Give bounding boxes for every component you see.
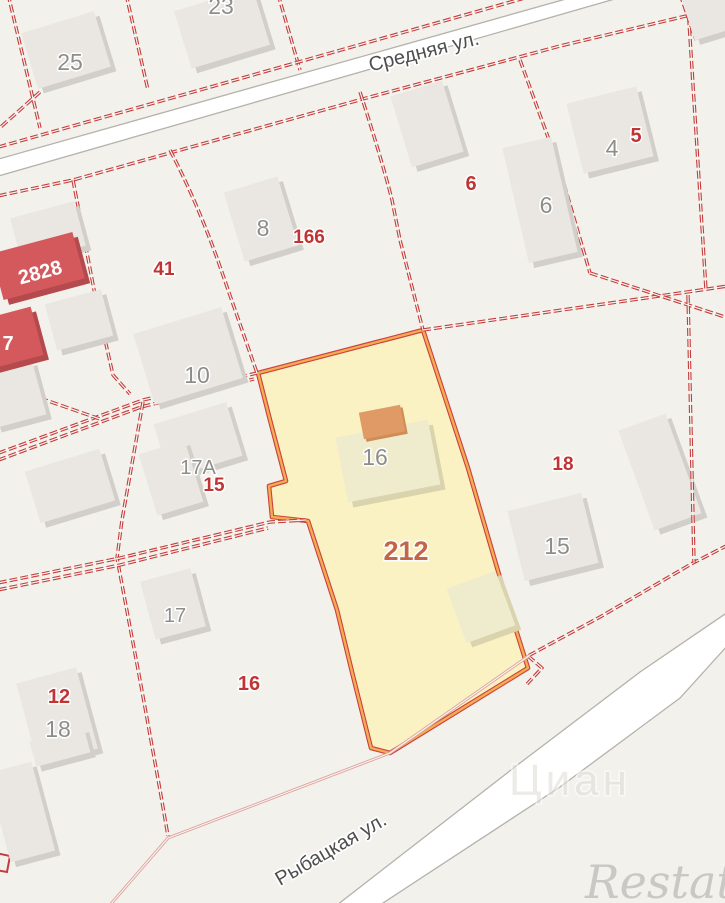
cadastral-map[interactable]: 25 23 8 166 41 2828 7 10 17А 15 17 16 12… <box>0 0 725 903</box>
building-label-17: 17 <box>164 605 186 627</box>
parcel-label-18: 18 <box>552 454 573 475</box>
building-label-4: 4 <box>606 135 619 161</box>
building-label-23: 23 <box>208 0 234 19</box>
selected-parcel-label: 212 <box>383 536 428 566</box>
building-label-7: 7 <box>2 333 13 355</box>
parcel-label-12: 12 <box>48 686 70 708</box>
parcel-label-16: 16 <box>238 673 260 695</box>
building-label-18: 18 <box>45 716 71 742</box>
parcel-label-6: 6 <box>465 173 476 195</box>
building-label-25: 25 <box>57 49 83 75</box>
parcel-label-166: 166 <box>293 227 325 248</box>
building-label-6: 6 <box>540 192 553 218</box>
watermark-restate: Restate <box>584 855 725 903</box>
watermark-cian: Циан <box>509 756 631 805</box>
building-label-15: 15 <box>544 533 570 559</box>
selected-building-label: 16 <box>362 444 388 470</box>
building-label-8: 8 <box>257 215 270 241</box>
parcel-label-41: 41 <box>153 259 175 280</box>
parcel-label-5: 5 <box>630 125 641 147</box>
parcel-label-15: 15 <box>203 475 225 496</box>
building-label-10: 10 <box>184 362 210 388</box>
